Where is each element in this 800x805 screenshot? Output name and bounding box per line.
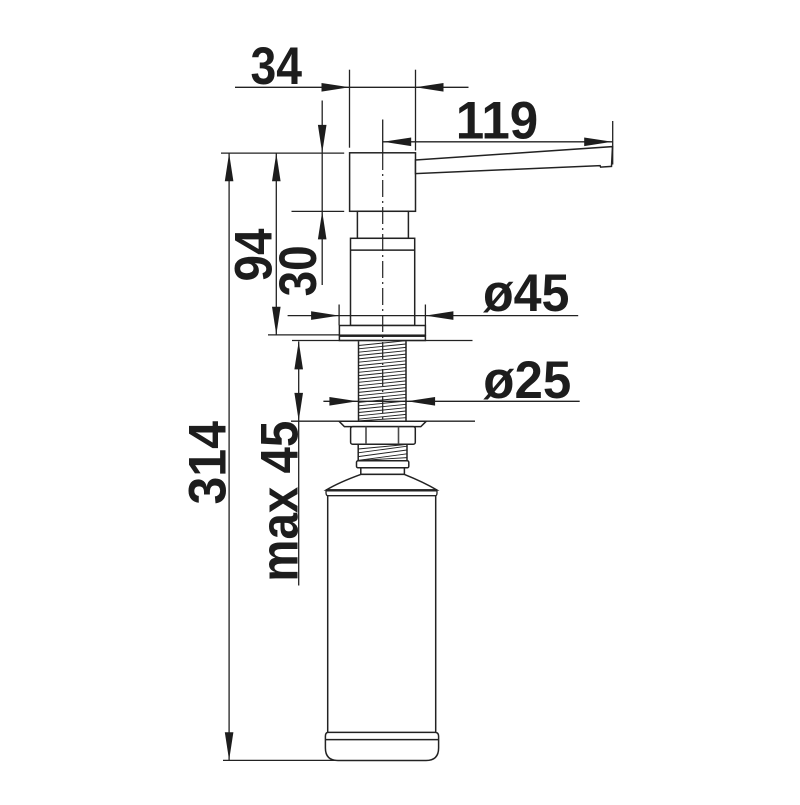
svg-text:max 45: max 45 (251, 421, 310, 582)
svg-text:ø45: ø45 (483, 264, 570, 323)
svg-text:30: 30 (269, 245, 328, 296)
svg-text:314: 314 (178, 421, 237, 505)
